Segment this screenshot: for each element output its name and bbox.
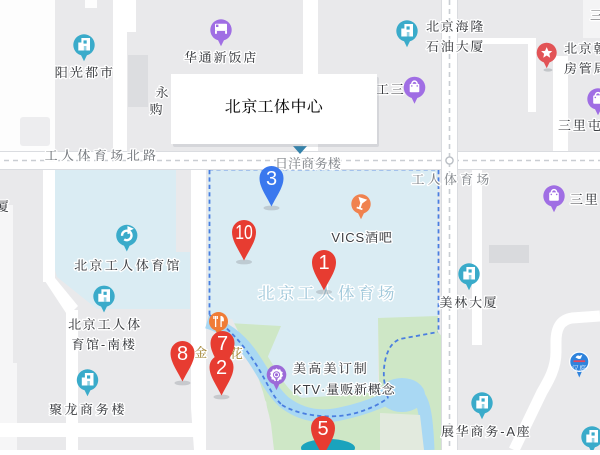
- svg-text:美高美订制: 美高美订制: [293, 358, 369, 377]
- svg-text:三里屯: 三里屯: [558, 115, 600, 134]
- svg-text:1: 1: [318, 246, 329, 275]
- svg-text:华通新饭店: 华通新饭店: [184, 47, 258, 66]
- svg-text:展华商务-A座: 展华商务-A座: [441, 421, 532, 440]
- svg-text:房管局: 房管局: [563, 58, 600, 77]
- svg-text:VICS酒吧: VICS酒吧: [331, 227, 392, 246]
- svg-text:8: 8: [177, 337, 188, 366]
- svg-text:2: 2: [216, 351, 227, 380]
- svg-text:北京工人体育馆: 北京工人体育馆: [74, 255, 182, 274]
- svg-text:石油大厦: 石油大厦: [426, 36, 485, 55]
- svg-text:金: 金: [195, 342, 210, 361]
- svg-text:三里: 三里: [570, 189, 600, 208]
- svg-text:3: 3: [266, 162, 277, 191]
- svg-text:美林大厦: 美林大厦: [439, 292, 498, 311]
- svg-text:育馆-南楼: 育馆-南楼: [71, 334, 136, 353]
- svg-text:汉庭: 汉庭: [572, 364, 587, 374]
- svg-text:阳光都市: 阳光都市: [55, 62, 116, 81]
- svg-text:北京工人体: 北京工人体: [68, 314, 142, 333]
- svg-text:KTV·量贩新概念: KTV·量贩新概念: [293, 379, 396, 398]
- svg-text:购: 购: [150, 99, 165, 118]
- svg-text:10: 10: [235, 216, 253, 245]
- svg-text:聚龙商务楼: 聚龙商务楼: [49, 399, 127, 418]
- svg-text:北京工体中心: 北京工体中心: [225, 94, 323, 117]
- svg-text:5: 5: [317, 412, 328, 441]
- svg-text:北京海隆: 北京海隆: [426, 16, 485, 35]
- svg-text:北京朝: 北京朝: [564, 38, 600, 57]
- svg-text:工三: 工三: [376, 79, 406, 98]
- svg-text:工人体育场北路: 工人体育场北路: [45, 145, 160, 164]
- svg-text:日洋商务楼: 日洋商务楼: [275, 153, 341, 172]
- svg-text:三: 三: [590, 5, 600, 24]
- svg-text:厦: 厦: [0, 196, 11, 215]
- svg-text:工人体育场: 工人体育场: [411, 169, 492, 188]
